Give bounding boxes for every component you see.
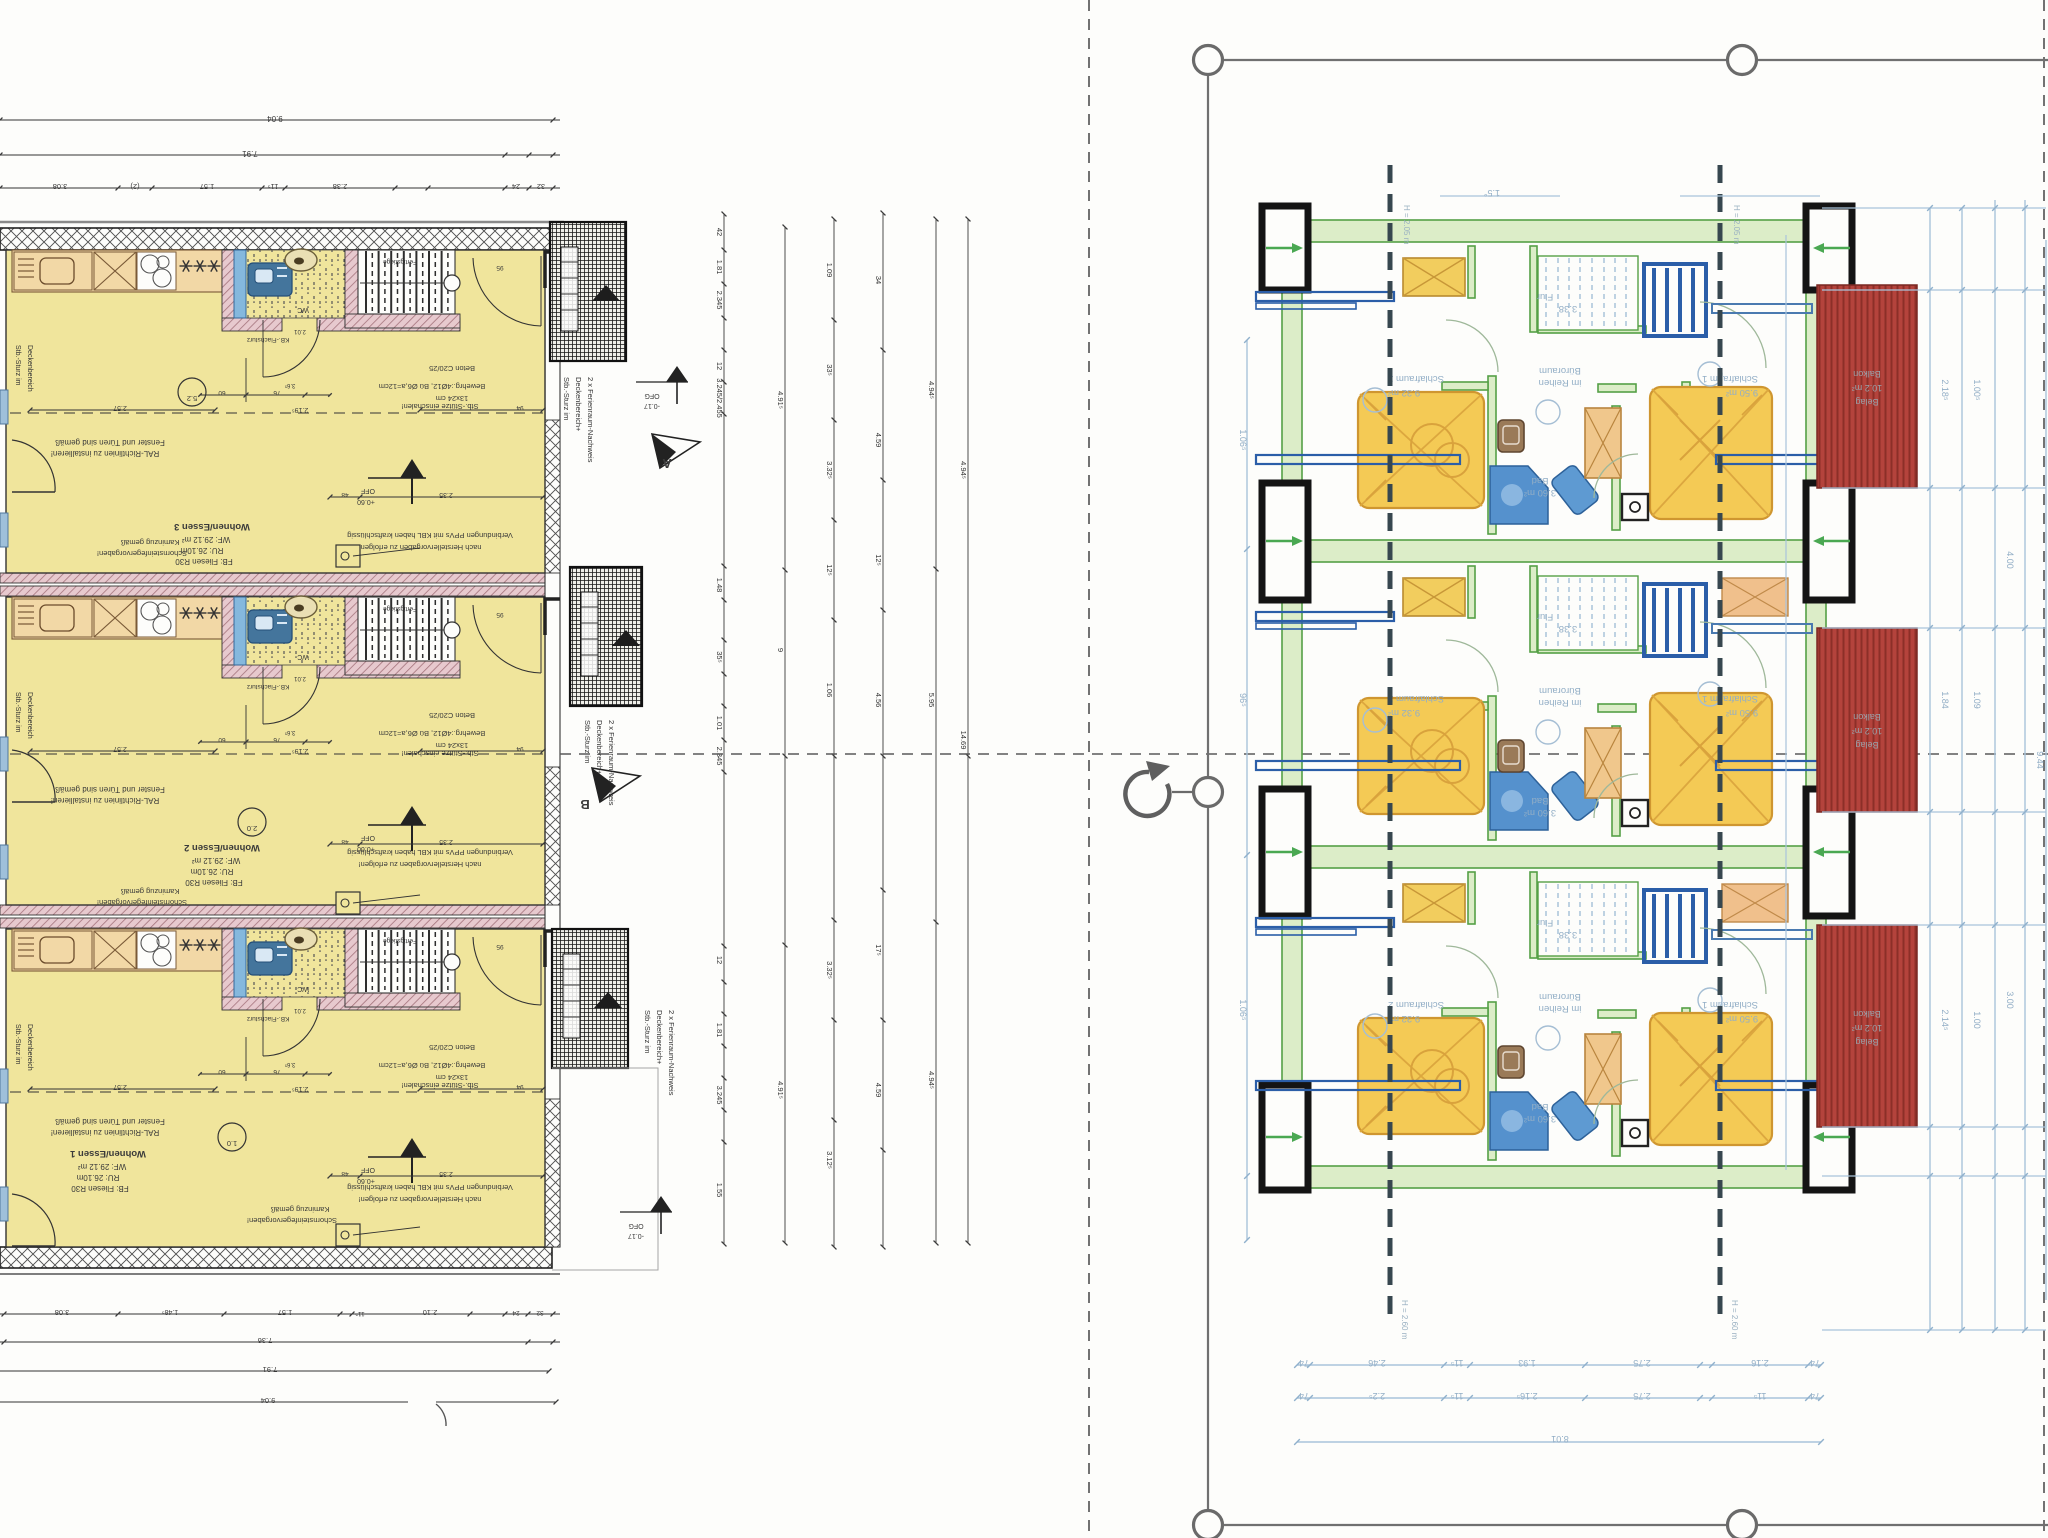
svg-text:WC: WC — [297, 985, 309, 992]
svg-text:2.35: 2.35 — [439, 1170, 453, 1177]
svg-text:B: B — [580, 797, 589, 812]
svg-text:3.32⁵: 3.32⁵ — [825, 961, 834, 979]
svg-text:12⁵: 12⁵ — [874, 554, 883, 565]
svg-text:7.91: 7.91 — [263, 1365, 278, 1374]
svg-text:Schlafraum 1: Schlafraum 1 — [1702, 693, 1758, 704]
svg-text:3.245: 3.245 — [715, 1086, 724, 1105]
svg-text:WF: 29.12 m²: WF: 29.12 m² — [77, 1162, 126, 1171]
svg-text:Fertigstiege: Fertigstiege — [383, 937, 417, 944]
svg-text:H = 2.05 m: H = 2.05 m — [1402, 205, 1411, 245]
svg-text:1.57: 1.57 — [278, 1308, 293, 1317]
svg-text:Schlafraum 2: Schlafraum 2 — [1388, 373, 1444, 384]
svg-text:74: 74 — [1810, 1391, 1820, 1401]
svg-text:1.55: 1.55 — [715, 1183, 724, 1198]
svg-text:-0.17: -0.17 — [644, 402, 660, 409]
svg-text:2.19⁵: 2.19⁵ — [292, 747, 309, 754]
svg-text:OFF: OFF — [361, 1166, 375, 1173]
svg-text:4.94⁵: 4.94⁵ — [927, 381, 936, 399]
svg-text:76: 76 — [273, 736, 281, 743]
svg-text:OFF: OFF — [361, 487, 375, 494]
svg-text:35⁵: 35⁵ — [715, 651, 724, 662]
svg-text:32: 32 — [537, 182, 545, 191]
svg-text:2.16⁵: 2.16⁵ — [1516, 1391, 1538, 1401]
svg-text:im Reihen: im Reihen — [1539, 1003, 1582, 1014]
svg-text:Belag: Belag — [1855, 397, 1878, 407]
svg-text:4.91⁵: 4.91⁵ — [776, 1081, 785, 1099]
svg-text:1.09: 1.09 — [1972, 691, 1982, 709]
svg-text:9.44: 9.44 — [2035, 751, 2045, 769]
svg-text:7.91: 7.91 — [242, 149, 258, 158]
svg-text:3.60 m²: 3.60 m² — [1524, 487, 1556, 498]
svg-text:2.18⁵: 2.18⁵ — [1940, 379, 1950, 401]
svg-text:8.01: 8.01 — [1551, 1434, 1569, 1444]
svg-text:1.01: 1.01 — [715, 716, 724, 731]
svg-text:Fertigstiege: Fertigstiege — [383, 258, 417, 265]
svg-text:1.57: 1.57 — [200, 182, 215, 191]
svg-text:Deckenbereich+: Deckenbereich+ — [595, 720, 604, 775]
svg-text:Balkon: Balkon — [1853, 369, 1881, 379]
svg-text:Stb.-Sturz im: Stb.-Sturz im — [583, 720, 592, 763]
svg-text:9.04: 9.04 — [267, 114, 283, 123]
svg-text:Stb.-Sturz im: Stb.-Sturz im — [14, 1024, 21, 1065]
svg-text:2.46: 2.46 — [1368, 1358, 1386, 1368]
svg-text:3.38: 3.38 — [1559, 929, 1578, 940]
svg-text:Schlafraum 2: Schlafraum 2 — [1388, 693, 1444, 704]
svg-text:WC: WC — [297, 306, 309, 313]
svg-text:3.38: 3.38 — [1559, 303, 1578, 314]
svg-text:3.12⁵: 3.12⁵ — [825, 1151, 834, 1169]
svg-text:48: 48 — [341, 838, 349, 845]
svg-text:5.2: 5.2 — [187, 394, 197, 403]
svg-text:Schlafraum 1: Schlafraum 1 — [1702, 373, 1758, 384]
svg-text:2.0: 2.0 — [247, 824, 257, 833]
svg-text:Büroraum: Büroraum — [1539, 685, 1581, 696]
svg-text:Bad: Bad — [1532, 795, 1549, 806]
svg-text:3.6⁵: 3.6⁵ — [284, 382, 295, 389]
svg-text:+0.60: +0.60 — [357, 498, 375, 505]
svg-text:3.60 m²: 3.60 m² — [1524, 1113, 1556, 1124]
svg-text:Deckenbereich+: Deckenbereich+ — [655, 1010, 664, 1065]
svg-text:2.345: 2.345 — [715, 291, 724, 310]
svg-text:4.56: 4.56 — [874, 693, 883, 708]
svg-text:Stb.-Sturz im: Stb.-Sturz im — [643, 1010, 652, 1053]
svg-text:1.93: 1.93 — [1518, 1358, 1536, 1368]
svg-text:RAL-Richtlinien zu installiere: RAL-Richtlinien zu installieren! — [51, 449, 160, 458]
svg-text:3.08: 3.08 — [53, 182, 68, 191]
svg-text:1.06⁵: 1.06⁵ — [1238, 429, 1248, 451]
svg-text:2.14⁵: 2.14⁵ — [1940, 1009, 1950, 1031]
svg-text:KB.-Flachsturz: KB.-Flachsturz — [247, 1015, 290, 1022]
svg-text:4.94⁵: 4.94⁵ — [927, 1071, 936, 1089]
svg-text:2 x Ferienraum-Nachweis: 2 x Ferienraum-Nachweis — [586, 377, 595, 463]
svg-text:Fenster und Türen sind gemäß: Fenster und Türen sind gemäß — [55, 1117, 165, 1126]
svg-text:3.60 m²: 3.60 m² — [1524, 807, 1556, 818]
svg-text:FB: Fliesen R30: FB: Fliesen R30 — [71, 1184, 129, 1193]
svg-text:96⁵: 96⁵ — [1238, 693, 1248, 707]
svg-text:Bad: Bad — [1532, 475, 1549, 486]
svg-text:76: 76 — [273, 1068, 281, 1075]
svg-text:Bad: Bad — [1532, 1101, 1549, 1112]
svg-text:2.01: 2.01 — [294, 675, 306, 681]
svg-text:RAL-Richtlinien zu installiere: RAL-Richtlinien zu installieren! — [51, 796, 160, 805]
svg-text:Belag: Belag — [1855, 1037, 1878, 1047]
svg-text:RU: 26.10m: RU: 26.10m — [190, 867, 233, 876]
svg-text:Deckenbereich+: Deckenbereich+ — [574, 377, 583, 432]
svg-text:RU: 26.10m: RU: 26.10m — [76, 1173, 119, 1182]
svg-text:9.04: 9.04 — [261, 1396, 276, 1405]
svg-text:2.57: 2.57 — [113, 745, 127, 752]
svg-text:Beton C20/25: Beton C20/25 — [429, 1043, 475, 1052]
svg-text:Wohnen/Essen 3: Wohnen/Essen 3 — [174, 521, 250, 532]
svg-text:13x24 cm: 13x24 cm — [436, 1073, 469, 1082]
svg-text:34: 34 — [874, 276, 883, 284]
svg-text:2.01: 2.01 — [294, 1007, 306, 1013]
svg-text:Schornsteinfegervorgaben!: Schornsteinfegervorgaben! — [247, 1216, 337, 1225]
svg-text:Flur: Flur — [1537, 291, 1553, 302]
svg-text:60: 60 — [218, 389, 226, 396]
svg-text:2.2⁵: 2.2⁵ — [1369, 1391, 1386, 1401]
svg-text:Büroraum: Büroraum — [1539, 991, 1581, 1002]
svg-text:13x24 cm: 13x24 cm — [436, 741, 469, 750]
svg-text:Schornsteinfegervorgaben!: Schornsteinfegervorgaben! — [97, 898, 187, 907]
svg-text:94: 94 — [516, 404, 524, 411]
svg-text:Schornsteinfegervorgaben!: Schornsteinfegervorgaben! — [97, 549, 187, 558]
svg-text:74: 74 — [1299, 1391, 1309, 1401]
svg-text:95: 95 — [496, 264, 504, 271]
svg-text:11⁵: 11⁵ — [1753, 1391, 1766, 1401]
svg-text:2.345: 2.345 — [715, 747, 724, 766]
svg-text:2.19⁵: 2.19⁵ — [292, 1085, 309, 1092]
svg-text:9.50 m²: 9.50 m² — [1726, 1013, 1758, 1024]
svg-text:3.00: 3.00 — [2005, 991, 2015, 1009]
svg-text:Belag: Belag — [1855, 740, 1878, 750]
svg-text:1.5°: 1.5° — [1483, 188, 1500, 198]
svg-text:2.19⁵: 2.19⁵ — [292, 406, 309, 413]
svg-text:10.2 m²: 10.2 m² — [1852, 1023, 1883, 1033]
svg-text:Deckenbereich: Deckenbereich — [26, 345, 33, 392]
svg-text:nach Herstellervorgaben zu erf: nach Herstellervorgaben zu erfolgen! — [359, 1195, 482, 1204]
svg-text:Fenster und Türen sind gemäß: Fenster und Türen sind gemäß — [55, 438, 165, 447]
svg-text:A: A — [662, 456, 672, 471]
svg-text:Deckenbereich: Deckenbereich — [26, 1024, 33, 1071]
svg-text:11⁵: 11⁵ — [355, 1310, 365, 1317]
svg-text:9.50 m²: 9.50 m² — [1726, 387, 1758, 398]
svg-text:WC: WC — [297, 653, 309, 660]
svg-text:60: 60 — [218, 736, 226, 743]
svg-text:4.59: 4.59 — [874, 1083, 883, 1098]
svg-text:im Reihen: im Reihen — [1539, 697, 1582, 708]
svg-text:3.6⁵: 3.6⁵ — [284, 1061, 295, 1068]
svg-text:3.38: 3.38 — [1559, 623, 1578, 634]
svg-text:2.57: 2.57 — [113, 404, 127, 411]
svg-text:1.84: 1.84 — [1940, 691, 1950, 709]
svg-text:24: 24 — [512, 1309, 520, 1316]
svg-text:nach Herstellervorgaben zu erf: nach Herstellervorgaben zu erfolgen! — [359, 860, 482, 869]
svg-text:60: 60 — [218, 1068, 226, 1075]
svg-text:94: 94 — [516, 745, 524, 752]
svg-text:Fertigstiege: Fertigstiege — [383, 605, 417, 612]
svg-text:1.81: 1.81 — [715, 260, 724, 275]
svg-text:(2): (2) — [130, 182, 140, 191]
svg-text:Büroraum: Büroraum — [1539, 365, 1581, 376]
svg-text:10.2 m²: 10.2 m² — [1852, 726, 1883, 736]
svg-text:9.32 m²: 9.32 m² — [1388, 387, 1420, 398]
svg-text:Stb.-Sturz im: Stb.-Sturz im — [14, 345, 21, 386]
svg-text:nach Herstellervorgaben zu erf: nach Herstellervorgaben zu erfolgen! — [359, 543, 482, 552]
svg-text:14.69: 14.69 — [959, 731, 968, 750]
svg-text:76: 76 — [273, 389, 281, 396]
svg-text:33⁵: 33⁵ — [825, 364, 834, 375]
svg-text:Balkon: Balkon — [1853, 1009, 1881, 1019]
svg-text:Verbindungen PPVs mit KBL hab: Verbindungen PPVs mit KBL haben kraftsch… — [347, 531, 513, 540]
svg-text:4.59: 4.59 — [874, 433, 883, 448]
svg-text:2.38: 2.38 — [333, 182, 348, 191]
svg-text:48: 48 — [341, 1170, 349, 1177]
svg-text:Flur: Flur — [1537, 611, 1553, 622]
svg-text:OFG: OFG — [644, 392, 659, 399]
svg-text:1.0: 1.0 — [227, 1139, 237, 1148]
svg-text:95: 95 — [496, 611, 504, 618]
svg-text:1.48⁵: 1.48⁵ — [162, 1308, 179, 1315]
svg-text:Schlafraum 1: Schlafraum 1 — [1702, 999, 1758, 1010]
svg-text:4.94⁵: 4.94⁵ — [959, 461, 968, 479]
svg-text:Stb.-Sturz im: Stb.-Sturz im — [14, 692, 21, 733]
svg-text:4.91⁵: 4.91⁵ — [776, 391, 785, 409]
svg-text:2.16: 2.16 — [1751, 1358, 1769, 1368]
svg-text:1.81: 1.81 — [715, 1023, 724, 1038]
svg-text:94: 94 — [516, 1083, 524, 1090]
svg-text:KB.-Flachsturz: KB.-Flachsturz — [247, 336, 290, 343]
svg-text:1.06⁵: 1.06⁵ — [1238, 999, 1248, 1021]
svg-text:42: 42 — [715, 228, 724, 236]
svg-text:12: 12 — [715, 362, 724, 370]
svg-text:11⁵: 11⁵ — [268, 182, 279, 191]
svg-text:Kaminzug gemäß: Kaminzug gemäß — [270, 1205, 329, 1214]
svg-text:3.08: 3.08 — [55, 1308, 70, 1317]
svg-text:Bewehrg.:4Ø12, Bü Ø6,a=12cm: Bewehrg.:4Ø12, Bü Ø6,a=12cm — [379, 1061, 486, 1070]
svg-text:Stb.-Sturz im: Stb.-Sturz im — [562, 377, 571, 420]
svg-text:WF: 29.12 m²: WF: 29.12 m² — [191, 856, 240, 865]
svg-text:2.10: 2.10 — [423, 1308, 438, 1317]
svg-text:24: 24 — [512, 182, 520, 191]
svg-text:Deckenbereich: Deckenbereich — [26, 692, 33, 739]
svg-text:3.245/2.455: 3.245/2.455 — [715, 378, 724, 418]
svg-text:12⁵: 12⁵ — [825, 564, 834, 575]
svg-text:+0.60: +0.60 — [357, 845, 375, 852]
svg-text:2.01: 2.01 — [294, 328, 306, 334]
svg-text:+0.60: +0.60 — [357, 1177, 375, 1184]
svg-text:Schlafraum 2: Schlafraum 2 — [1388, 999, 1444, 1010]
svg-text:2.35: 2.35 — [439, 491, 453, 498]
svg-text:1.00: 1.00 — [1972, 1011, 1982, 1029]
svg-text:7.36: 7.36 — [258, 1336, 273, 1345]
svg-text:Kaminzug gemäß: Kaminzug gemäß — [120, 538, 179, 547]
svg-text:74: 74 — [1299, 1358, 1309, 1368]
svg-text:OFG: OFG — [628, 1222, 643, 1229]
svg-text:FB: Fliesen R30: FB: Fliesen R30 — [185, 878, 243, 887]
svg-text:3.32⁵: 3.32⁵ — [825, 461, 834, 479]
svg-text:Flur: Flur — [1537, 917, 1553, 928]
svg-text:11⁵: 11⁵ — [1450, 1391, 1463, 1401]
svg-text:Balkon: Balkon — [1853, 712, 1881, 722]
svg-text:Kaminzug gemäß: Kaminzug gemäß — [120, 887, 179, 896]
svg-text:2.75: 2.75 — [1633, 1358, 1651, 1368]
svg-text:im Reihen: im Reihen — [1539, 377, 1582, 388]
svg-text:Beton C20/25: Beton C20/25 — [429, 711, 475, 720]
svg-text:48: 48 — [341, 491, 349, 498]
svg-text:95: 95 — [496, 943, 504, 950]
svg-text:2 x Ferienraum-Nachweis: 2 x Ferienraum-Nachweis — [667, 1010, 676, 1096]
svg-text:12: 12 — [715, 956, 724, 964]
svg-text:H = 2.60 m: H = 2.60 m — [1730, 1300, 1739, 1340]
svg-text:KB.-Flachsturz: KB.-Flachsturz — [247, 683, 290, 690]
svg-text:9.32 m²: 9.32 m² — [1388, 1013, 1420, 1024]
svg-text:Bewehrg.:4Ø12, Bü Ø6,a=12cm: Bewehrg.:4Ø12, Bü Ø6,a=12cm — [379, 729, 486, 738]
svg-text:Fenster und Türen sind gemäß: Fenster und Türen sind gemäß — [55, 785, 165, 794]
svg-text:Wohnen/Essen 1: Wohnen/Essen 1 — [69, 1148, 146, 1159]
svg-text:9.50 m²: 9.50 m² — [1726, 707, 1758, 718]
svg-text:2.57: 2.57 — [113, 1083, 127, 1090]
svg-text:9.32 m²: 9.32 m² — [1388, 707, 1420, 718]
svg-text:1.06: 1.06 — [825, 683, 834, 698]
svg-text:1.00⁵: 1.00⁵ — [1972, 379, 1982, 401]
svg-text:74: 74 — [1810, 1358, 1820, 1368]
svg-text:1.09: 1.09 — [825, 263, 834, 278]
svg-text:10.2 m²: 10.2 m² — [1852, 383, 1883, 393]
svg-text:OFF: OFF — [361, 834, 375, 841]
svg-text:4.00: 4.00 — [2005, 551, 2015, 569]
svg-text:H = 2.05 m: H = 2.05 m — [1732, 205, 1741, 245]
svg-text:WF: 29.12 m²: WF: 29.12 m² — [181, 535, 230, 544]
svg-text:1.48: 1.48 — [715, 578, 724, 593]
svg-text:9: 9 — [776, 648, 785, 652]
svg-text:17⁵: 17⁵ — [874, 944, 883, 955]
svg-text:2.35: 2.35 — [439, 838, 453, 845]
svg-text:Wohnen/Essen 2: Wohnen/Essen 2 — [184, 842, 260, 853]
svg-text:2.75: 2.75 — [1633, 1391, 1651, 1401]
svg-text:RAL-Richtlinien zu installiere: RAL-Richtlinien zu installieren! — [51, 1128, 160, 1137]
svg-text:Bewehrg.:4Ø12, Bü Ø6,a=12cm: Bewehrg.:4Ø12, Bü Ø6,a=12cm — [379, 382, 486, 391]
svg-text:32: 32 — [536, 1309, 544, 1316]
svg-text:13x24 cm: 13x24 cm — [436, 394, 469, 403]
svg-text:3.6⁵: 3.6⁵ — [284, 729, 295, 736]
svg-text:5.95: 5.95 — [927, 693, 936, 708]
svg-text:-0.17: -0.17 — [628, 1232, 644, 1239]
svg-text:11⁵: 11⁵ — [1450, 1358, 1463, 1368]
svg-text:H = 2.60 m: H = 2.60 m — [1400, 1300, 1409, 1340]
svg-text:Beton C20/25: Beton C20/25 — [429, 364, 475, 373]
